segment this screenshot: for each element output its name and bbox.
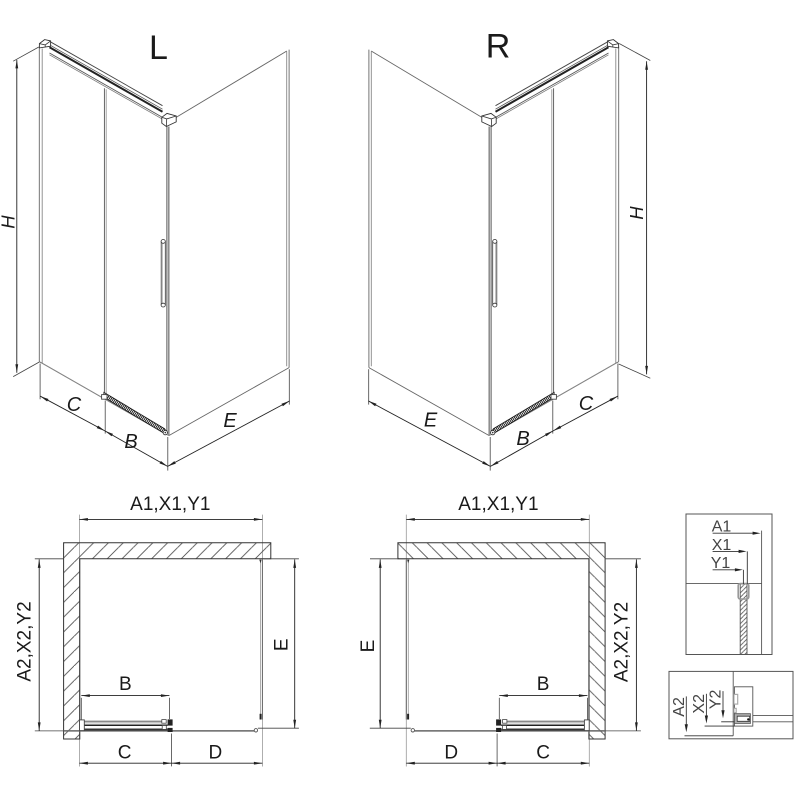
svg-text:X1: X1 <box>712 537 732 554</box>
svg-text:X2: X2 <box>691 694 708 714</box>
svg-text:C: C <box>536 743 550 764</box>
svg-text:E: E <box>358 640 379 653</box>
svg-text:R: R <box>486 28 511 66</box>
svg-text:Y2: Y2 <box>708 690 725 710</box>
svg-text:Y1: Y1 <box>711 555 731 572</box>
svg-text:E: E <box>272 638 293 651</box>
svg-text:H: H <box>626 206 647 220</box>
svg-text:C: C <box>67 394 82 416</box>
svg-text:A2,X2,Y2: A2,X2,Y2 <box>14 601 35 681</box>
svg-text:E: E <box>424 410 438 432</box>
svg-text:A1,X1,Y1: A1,X1,Y1 <box>130 494 210 515</box>
svg-text:B: B <box>119 674 132 695</box>
svg-text:A1,X1,Y1: A1,X1,Y1 <box>458 494 538 515</box>
svg-text:A1: A1 <box>712 519 732 536</box>
svg-text:B: B <box>516 428 529 450</box>
svg-text:A2: A2 <box>671 697 688 717</box>
svg-text:E: E <box>223 410 237 432</box>
svg-text:D: D <box>209 743 223 764</box>
svg-text:D: D <box>444 743 458 764</box>
svg-text:C: C <box>579 393 594 415</box>
svg-text:H: H <box>0 215 19 229</box>
svg-text:A2,X2,Y2: A2,X2,Y2 <box>611 602 632 682</box>
svg-text:L: L <box>149 29 168 67</box>
svg-text:B: B <box>537 674 550 695</box>
svg-text:C: C <box>118 743 132 764</box>
svg-text:B: B <box>124 431 137 453</box>
